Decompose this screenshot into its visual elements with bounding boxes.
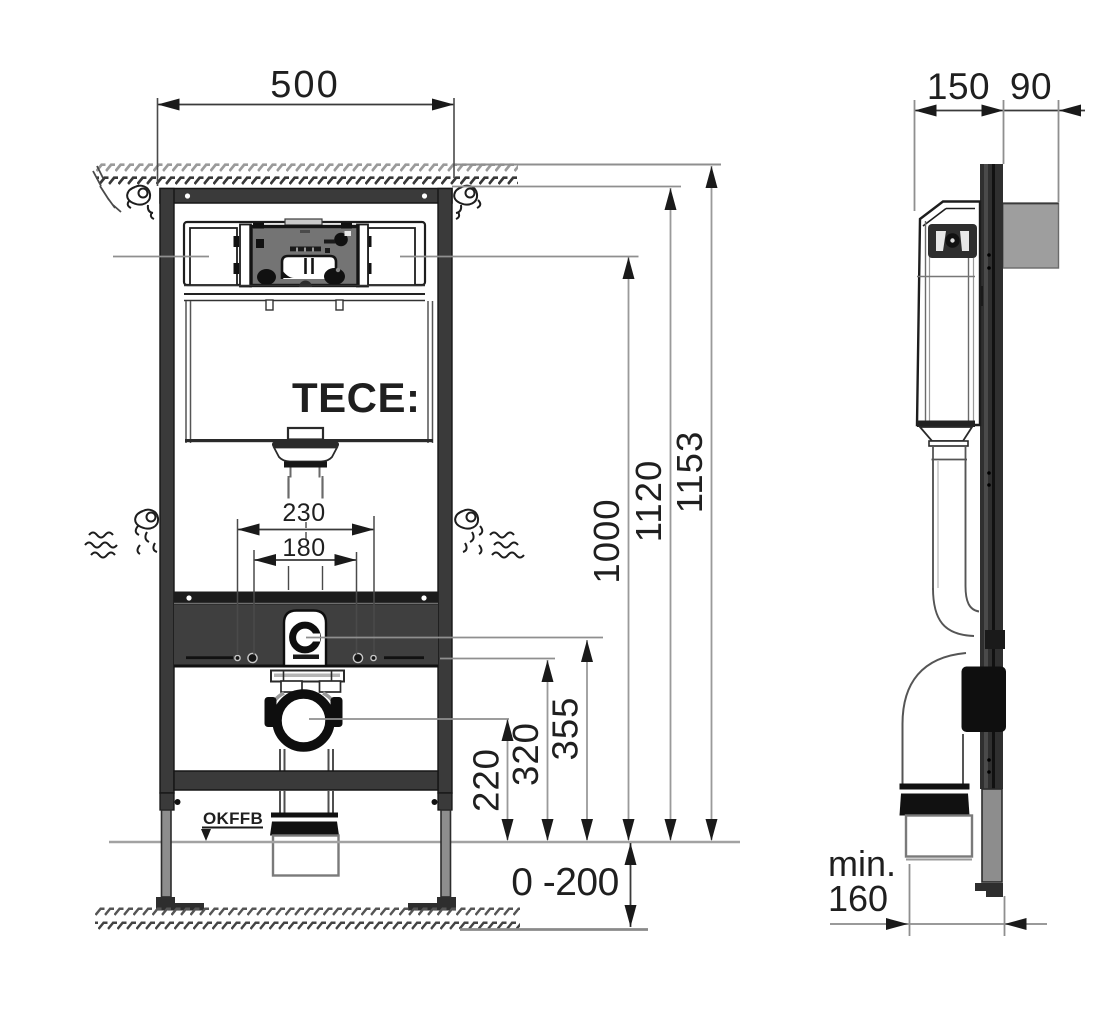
svg-text:150: 150 (927, 66, 990, 107)
svg-text:320: 320 (505, 722, 546, 786)
svg-text:TECE:: TECE: (292, 374, 421, 421)
svg-text:0 -200: 0 -200 (511, 861, 619, 904)
svg-text:160: 160 (828, 878, 888, 919)
svg-text:220: 220 (466, 748, 507, 812)
svg-text:500: 500 (270, 64, 339, 106)
svg-text:180: 180 (282, 534, 325, 562)
svg-text:OKFFB: OKFFB (203, 809, 263, 828)
svg-text:355: 355 (545, 697, 586, 761)
svg-text:1153: 1153 (669, 431, 710, 514)
svg-text:90: 90 (1010, 66, 1052, 107)
svg-text:1000: 1000 (586, 498, 627, 583)
svg-text:230: 230 (282, 499, 325, 527)
svg-text:1120: 1120 (628, 460, 669, 543)
